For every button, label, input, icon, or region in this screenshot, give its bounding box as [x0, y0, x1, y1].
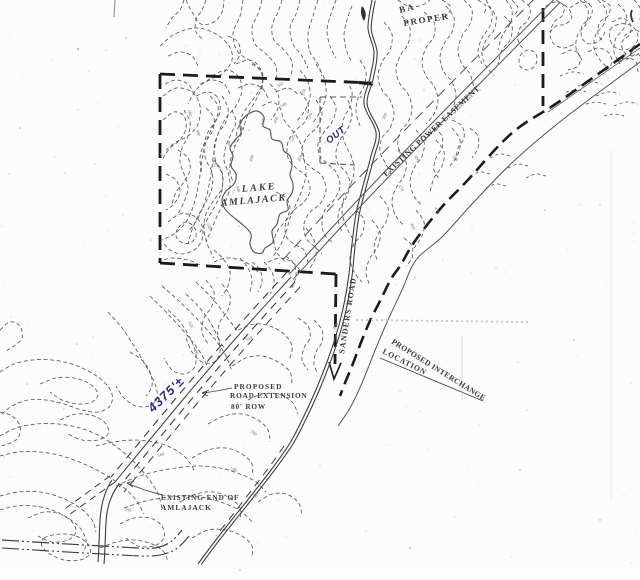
svg-text:ROAD EXTENSION: ROAD EXTENSION	[230, 391, 308, 400]
svg-text:AMLAJACK: AMLAJACK	[161, 503, 212, 512]
svg-text:EXISTING END OF: EXISTING END OF	[161, 493, 239, 502]
svg-text:80' ROW: 80' ROW	[231, 402, 266, 411]
svg-text:420: 420	[212, 160, 218, 168]
svg-text:PROPOSED: PROPOSED	[234, 382, 283, 391]
